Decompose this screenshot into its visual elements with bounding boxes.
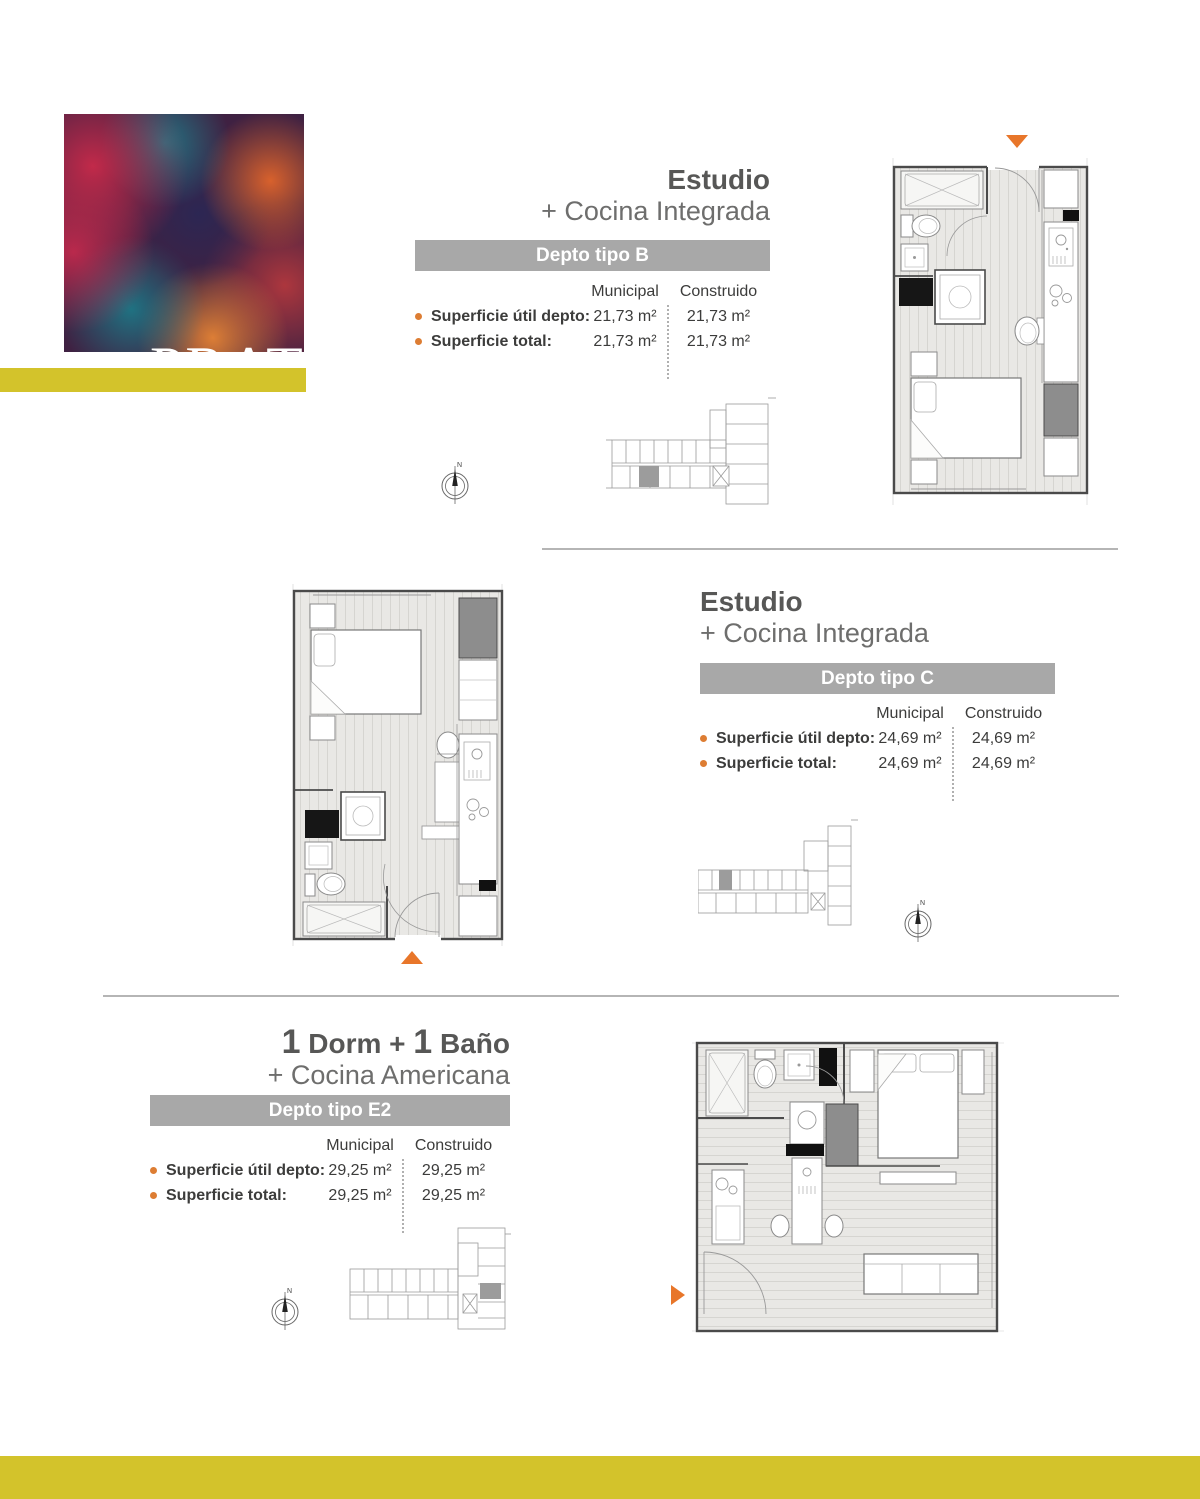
unit-location-highlight (480, 1283, 501, 1299)
title-number: 1 (282, 1023, 301, 1061)
row-label: Superficie total: (716, 755, 837, 773)
unit-location-highlight (719, 870, 732, 890)
section-e2-type-label: Depto tipo E2 (269, 1100, 391, 1121)
col-construido: Construido (952, 705, 1055, 723)
col-municipal: Municipal (318, 1137, 402, 1155)
north-compass-icon (267, 1284, 303, 1332)
table-header-row: Municipal Construido (150, 1133, 510, 1158)
floor-plan-depto-b (891, 158, 1090, 505)
column-separator (952, 727, 954, 801)
table-header-row: Municipal Construido (415, 279, 770, 304)
accent-bar-left (0, 368, 306, 392)
section-divider (103, 995, 1119, 997)
brand-logo: PRAT 631 (64, 114, 304, 352)
section-c-title-line2: + Cocina Integrada (700, 618, 1060, 648)
bullet-icon (150, 1167, 157, 1174)
col-construido: Construido (667, 283, 770, 301)
table-header-row: Municipal Construido (700, 701, 1055, 726)
table-row-total: Superficie total: 24,69 m² 24,69 m² (700, 751, 1055, 776)
entry-marker-up-icon (401, 951, 423, 964)
section-e2-title-line1: 1 Dorm + 1 Baño (150, 1026, 510, 1060)
section-b-title-line2: + Cocina Integrada (415, 196, 770, 226)
title-word: Dorm + (300, 1028, 413, 1059)
value-total-construido: 29,25 m² (402, 1187, 505, 1205)
table-row-total: Superficie total: 21,73 m² 21,73 m² (415, 329, 770, 354)
section-b-title-line1: Estudio (415, 163, 770, 196)
bullet-icon (415, 338, 422, 345)
section-e2-type-bar: Depto tipo E2 (150, 1095, 510, 1126)
value-total-municipal: 24,69 m² (868, 755, 952, 773)
key-plan-depto-b (606, 394, 781, 512)
row-label: Superficie útil depto: (716, 730, 875, 748)
entry-marker-down-icon (1006, 135, 1028, 148)
section-c-spec-table: Municipal Construido Superficie útil dep… (700, 701, 1055, 803)
value-util-municipal: 24,69 m² (868, 730, 952, 748)
row-label: Superficie total: (166, 1187, 287, 1205)
key-plan-depto-e2 (346, 1226, 511, 1334)
section-c-type-label: Depto tipo C (821, 668, 934, 689)
section-b-title: Estudio + Cocina Integrada (415, 163, 770, 226)
floor-plan-depto-e2 (692, 1038, 1004, 1336)
section-divider (542, 548, 1118, 550)
unit-location-highlight (639, 466, 659, 487)
value-util-construido: 29,25 m² (402, 1162, 505, 1180)
table-row-util: Superficie útil depto: 21,73 m² 21,73 m² (415, 304, 770, 329)
bullet-icon (700, 735, 707, 742)
section-c-title-line1: Estudio (700, 585, 1060, 618)
bullet-icon (415, 313, 422, 320)
section-e2-spec-table: Municipal Construido Superficie útil dep… (150, 1133, 510, 1235)
column-separator (402, 1159, 404, 1233)
brochure-page: N PRAT 631 Estudio + Cocina Integrada De… (0, 0, 1200, 1499)
value-total-municipal: 29,25 m² (318, 1187, 402, 1205)
table-row-total: Superficie total: 29,25 m² 29,25 m² (150, 1183, 510, 1208)
north-compass-icon (437, 458, 473, 506)
value-util-municipal: 21,73 m² (583, 308, 667, 326)
table-row-util: Superficie útil depto: 24,69 m² 24,69 m² (700, 726, 1055, 751)
col-construido: Construido (402, 1137, 505, 1155)
key-plan-depto-c (698, 818, 858, 930)
title-word: Baño (432, 1028, 510, 1059)
col-municipal: Municipal (583, 283, 667, 301)
table-row-util: Superficie útil depto: 29,25 m² 29,25 m² (150, 1158, 510, 1183)
value-total-construido: 24,69 m² (952, 755, 1055, 773)
section-c-title: Estudio + Cocina Integrada (700, 585, 1060, 648)
row-label: Superficie total: (431, 333, 552, 351)
bullet-icon (700, 760, 707, 767)
section-b-type-bar: Depto tipo B (415, 240, 770, 271)
column-separator (667, 305, 669, 379)
value-util-construido: 24,69 m² (952, 730, 1055, 748)
north-compass-icon (900, 896, 936, 944)
value-total-construido: 21,73 m² (667, 333, 770, 351)
entry-marker-right-icon (671, 1285, 685, 1305)
floor-plan-depto-c (291, 584, 505, 946)
row-label: Superficie útil depto: (166, 1162, 325, 1180)
value-util-municipal: 29,25 m² (318, 1162, 402, 1180)
bullet-icon (150, 1192, 157, 1199)
section-c-type-bar: Depto tipo C (700, 663, 1055, 694)
section-b-spec-table: Municipal Construido Superficie útil dep… (415, 279, 770, 381)
value-total-municipal: 21,73 m² (583, 333, 667, 351)
row-label: Superficie útil depto: (431, 308, 590, 326)
section-b-type-label: Depto tipo B (536, 245, 649, 266)
value-util-construido: 21,73 m² (667, 308, 770, 326)
section-e2-title-line2: + Cocina Americana (150, 1060, 510, 1090)
brand-logo-text: PRAT (150, 338, 304, 352)
section-e2-title: 1 Dorm + 1 Baño + Cocina Americana (150, 1026, 510, 1090)
accent-bar-bottom (0, 1456, 1200, 1499)
title-number: 1 (413, 1023, 432, 1061)
col-municipal: Municipal (868, 705, 952, 723)
